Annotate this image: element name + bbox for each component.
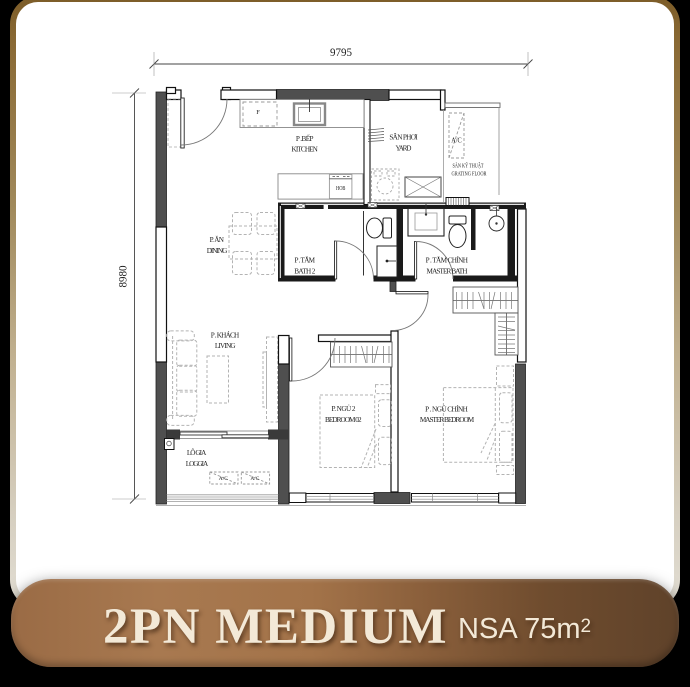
svg-text:GRATING FLOOR: GRATING FLOOR — [452, 172, 487, 178]
svg-text:LOGGIA: LOGGIA — [186, 460, 209, 468]
svg-text:MASTER BATH: MASTER BATH — [427, 268, 468, 276]
svg-text:A/C: A/C — [219, 476, 228, 482]
svg-text:P . TẮM CHÍNH: P . TẮM CHÍNH — [426, 254, 468, 264]
svg-text:LÔ GIA: LÔ GIA — [187, 447, 207, 457]
svg-text:MASTER BEDROOM: MASTER BEDROOM — [420, 416, 475, 424]
svg-text:YARD: YARD — [396, 144, 412, 152]
svg-text:P .BẾP: P .BẾP — [296, 133, 314, 143]
svg-text:P . KHÁCH: P . KHÁCH — [211, 330, 239, 340]
svg-text:P. ĂN: P. ĂN — [210, 235, 225, 244]
svg-text:HOB: HOB — [336, 186, 346, 192]
svg-text:9795: 9795 — [330, 45, 352, 59]
svg-text:P . TẮM: P . TẮM — [295, 254, 316, 264]
svg-text:A/C: A/C — [250, 476, 259, 482]
svg-text:SÂN PHƠI: SÂN PHƠI — [389, 131, 418, 141]
svg-text:P. NGỦ 2: P. NGỦ 2 — [332, 403, 356, 413]
svg-text:DINING: DINING — [207, 247, 228, 255]
svg-text:SÀN KỸ THUẬT: SÀN KỸ THUẬT — [453, 162, 484, 170]
svg-text:A/C: A/C — [451, 137, 462, 145]
svg-text:BATH 2: BATH 2 — [294, 268, 316, 276]
svg-text:LIVING: LIVING — [215, 342, 236, 350]
svg-text:BEDROOM 02: BEDROOM 02 — [325, 416, 362, 424]
svg-text:P . NGỦ CHÍNH: P . NGỦ CHÍNH — [425, 403, 468, 413]
svg-text:KITCHEN: KITCHEN — [292, 146, 319, 154]
svg-text:F: F — [256, 109, 260, 116]
svg-text:8980: 8980 — [116, 266, 130, 288]
